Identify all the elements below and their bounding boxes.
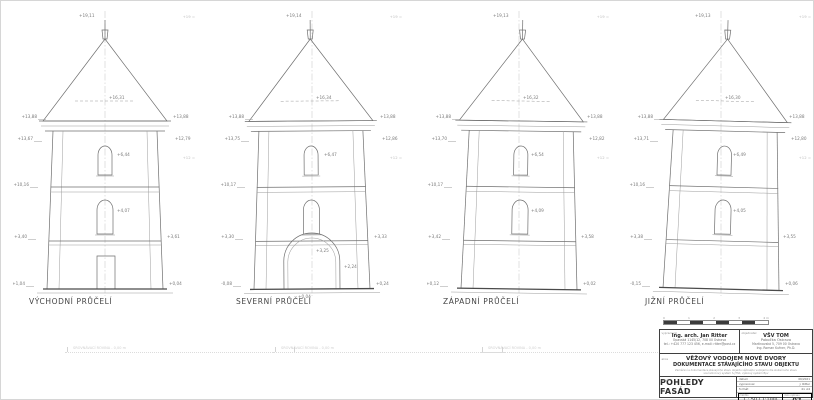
elevation-annotation: +10,16	[630, 182, 646, 187]
scale-cell: měřítko 1 : 50 ( 1:100)	[739, 394, 784, 400]
elevation-annotation: +3,25	[316, 248, 329, 253]
comparison-plane-text: SROVNÁVACÍ ROVINA - 0,00 m	[73, 346, 126, 350]
datum-mark: +12 =	[390, 155, 402, 160]
elevation-annotation: +13,70	[432, 136, 448, 141]
elevation-annotation: +3,61	[167, 234, 180, 239]
elevation-annotation: +4,07	[117, 208, 130, 213]
architect-contact: tel.: +420 777 123 456, e-mail: ritter@p…	[660, 343, 739, 347]
elevation-annotation: +13,88	[380, 114, 396, 119]
elevation-annotation: +10,17	[221, 182, 237, 187]
elevation-annotation: +3,42	[428, 234, 441, 239]
title-block: vypracoval Ing. arch. Jan Ritter Opavská…	[659, 329, 813, 398]
elevation-annotation: +6,49	[733, 152, 746, 157]
elevation-annotation: +12,80	[791, 136, 807, 141]
scale-bar-segments	[663, 320, 769, 325]
elevation-annotation: +13,88	[789, 114, 805, 119]
field-value: J. Ritter	[800, 382, 810, 386]
drawing-content-cell: obsah POHLEDY FASÁD	[660, 377, 737, 397]
elevation-annotation: +2,24	[344, 264, 357, 269]
elevation-annotation: +6,54	[531, 152, 544, 157]
elevation-annotation: +13,88	[229, 114, 245, 119]
elevation-annotation: +13,88	[22, 114, 38, 119]
elevation-annotation: +16,32	[523, 95, 539, 100]
graphic-scale-bar: 0 1 2 3 4 m	[663, 316, 769, 325]
elevation-annotation: +3,55	[783, 234, 796, 239]
tower-outline	[242, 20, 380, 294]
elevation-annotation: +19,14	[286, 13, 302, 18]
client-cell: objednatel VŠV TOM Pobočka Ostrava Marti…	[740, 330, 812, 353]
elevation-annotation: +0,04	[169, 281, 182, 286]
fields-cell: datum 06/2021 vypracoval J. Ritter formá…	[737, 377, 812, 397]
elevation-annotations: +19,14+16,34+13,88+13,75+13,88+12,86+10,…	[221, 13, 403, 299]
elevation-east: +19,11+16,31+13,88+13,67+13,88+12,79+10,…	[13, 5, 198, 315]
datum-mark: +12 =	[799, 155, 811, 160]
elevation-annotation: +13,71	[634, 136, 650, 141]
project-cell: akce VĚŽOVÝ VODOJEM NOVÉ DVORY DOKUMENTA…	[660, 356, 812, 377]
elevation-annotation: +3,33	[374, 234, 387, 239]
elevation-annotation: +13,88	[436, 114, 452, 119]
elevation-annotation: +13,88	[173, 114, 189, 119]
elevation-annotation: +19,13	[493, 13, 509, 18]
tower-outline	[451, 19, 591, 294]
scale-tick-label: 3	[738, 316, 740, 320]
elevation-annotation: +13,75	[225, 136, 241, 141]
tower-drawing: +19,13+16,32+13,88+13,70+13,88+12,82+10,…	[427, 5, 612, 300]
drawing-title: POHLEDY FASÁD	[660, 378, 736, 396]
comparison-plane-text: SROVNÁVACÍ ROVINA - 0,00 m	[281, 346, 334, 350]
elevation-annotation: +0,24	[376, 281, 389, 286]
field-label: vypracoval	[739, 382, 754, 386]
elevation-annotation: +4,05	[733, 208, 746, 213]
elevation-north: +19,14+16,34+13,88+13,75+13,88+12,86+10,…	[220, 5, 405, 315]
elevation-annotations: +19,11+16,31+13,88+13,67+13,88+12,79+10,…	[13, 13, 195, 287]
datum-mark: +12 =	[183, 155, 195, 160]
elevation-annotation: +19,13	[695, 13, 711, 18]
elevation-annotation: +16,30	[725, 95, 741, 100]
elevation-west: +19,13+16,32+13,88+13,70+13,88+12,82+10,…	[427, 5, 612, 315]
field-label: formát	[739, 387, 748, 391]
datum-mark: +19 =	[183, 14, 195, 19]
elevation-annotation: +3,30	[221, 234, 234, 239]
drawing-number-label: číslo výkresu	[784, 394, 800, 397]
drawing-sheet: +19,11+16,31+13,88+13,67+13,88+12,79+10,…	[0, 0, 814, 400]
datum-mark: +19 =	[597, 14, 609, 19]
elevation-annotation: +1,04	[13, 281, 25, 286]
elevation-annotation: +6,44	[117, 152, 130, 157]
datum-mark: +12 =	[597, 155, 609, 160]
elevation-annotation: +16,31	[109, 95, 125, 100]
project-subtitle: DOKUMENTACE STÁVAJÍCÍHO STAVU OBJEKTU	[660, 363, 812, 369]
elevation-annotation: +0,12	[427, 281, 439, 286]
scale-tick-label: 2	[713, 316, 715, 320]
scale-label: měřítko	[740, 394, 749, 397]
elevation-annotation: +13,88	[587, 114, 603, 119]
elevation-annotation: +12,79	[175, 136, 191, 141]
elevation-annotation: +3,40	[14, 234, 27, 239]
tower-drawing: +19,11+16,31+13,88+13,67+13,88+12,79+10,…	[13, 5, 198, 300]
elevation-south: +19,13+16,30+13,88+13,71+13,88+12,80+10,…	[629, 5, 814, 315]
comparison-plane-line: SROVNÁVACÍ ROVINA - 0,00 m	[65, 346, 297, 354]
cell-corner-label: vypracoval	[662, 331, 677, 335]
elevation-annotation: +6,47	[324, 152, 337, 157]
architect-cell: vypracoval Ing. arch. Jan Ritter Opavská…	[660, 330, 740, 353]
scale-number-box: měřítko 1 : 50 ( 1:100) číslo výkresu 02	[738, 393, 812, 400]
elevation-annotation: +12,86	[382, 136, 398, 141]
drawing-number-cell: číslo výkresu 02	[783, 394, 810, 400]
datum-mark: +19 =	[390, 14, 402, 19]
elevation-label: SEVERNÍ PRŮČELÍ	[236, 297, 311, 306]
datum-mark: +19 =	[799, 14, 811, 19]
elevation-annotation: +4,09	[531, 208, 544, 213]
elevation-label: JIŽNÍ PRŮČELÍ	[645, 297, 704, 306]
elevation-annotation: -0,08	[221, 281, 232, 286]
client-contact: Ing. Roman Kufner, Ph.D.	[740, 347, 812, 351]
cell-corner-label: obsah	[662, 378, 670, 382]
cell-corner-label: objednatel	[742, 331, 757, 335]
elevation-label: ZÁPADNÍ PRŮČELÍ	[443, 297, 519, 306]
elevation-annotation: +10,16	[14, 182, 30, 187]
field-label: datum	[739, 377, 748, 381]
cell-corner-label: akce	[662, 357, 669, 361]
elevation-annotation: +12,82	[589, 136, 605, 141]
elevation-annotation: +10,17	[428, 182, 444, 187]
elevation-annotation: +3,38	[630, 234, 643, 239]
scale-tick-label: 0	[663, 316, 665, 320]
field-value: 4× A4	[801, 387, 810, 391]
elevation-label: VÝCHODNÍ PRŮČELÍ	[29, 297, 112, 306]
elevation-annotations: +19,13+16,32+13,88+13,70+13,88+12,82+10,…	[427, 13, 609, 287]
elevation-annotation: +0,06	[785, 281, 798, 286]
elevation-annotation: +19,11	[79, 13, 95, 18]
tower-outline	[653, 18, 796, 294]
field-row: formát 4× A4	[737, 387, 812, 392]
scale-tick-label: 4 m	[763, 316, 769, 320]
elevation-annotation: +3,58	[581, 234, 594, 239]
elevation-annotations: +19,13+16,30+13,88+13,71+13,88+12,80+10,…	[630, 13, 812, 287]
elevation-annotation: +13,88	[638, 114, 654, 119]
elevation-annotation: +13,67	[18, 136, 34, 141]
project-note: souřadnicový systém S-JTSK, výškový syst…	[660, 372, 812, 375]
tower-drawing: +19,13+16,30+13,88+13,71+13,88+12,80+10,…	[629, 5, 814, 300]
comparison-plane-line: SROVNÁVACÍ ROVINA - 0,00 m	[273, 346, 505, 354]
tower-drawing: +19,14+16,34+13,88+13,75+13,88+12,86+10,…	[220, 5, 405, 300]
scale-tick-label: 1	[688, 316, 690, 320]
field-value: 06/2021	[798, 377, 810, 381]
elevation-annotation: -0,15	[630, 281, 641, 286]
comparison-plane-text: SROVNÁVACÍ ROVINA - 0,00 m	[488, 346, 541, 350]
elevation-annotation: +16,34	[316, 95, 332, 100]
elevation-annotation: +0,02	[583, 281, 596, 286]
